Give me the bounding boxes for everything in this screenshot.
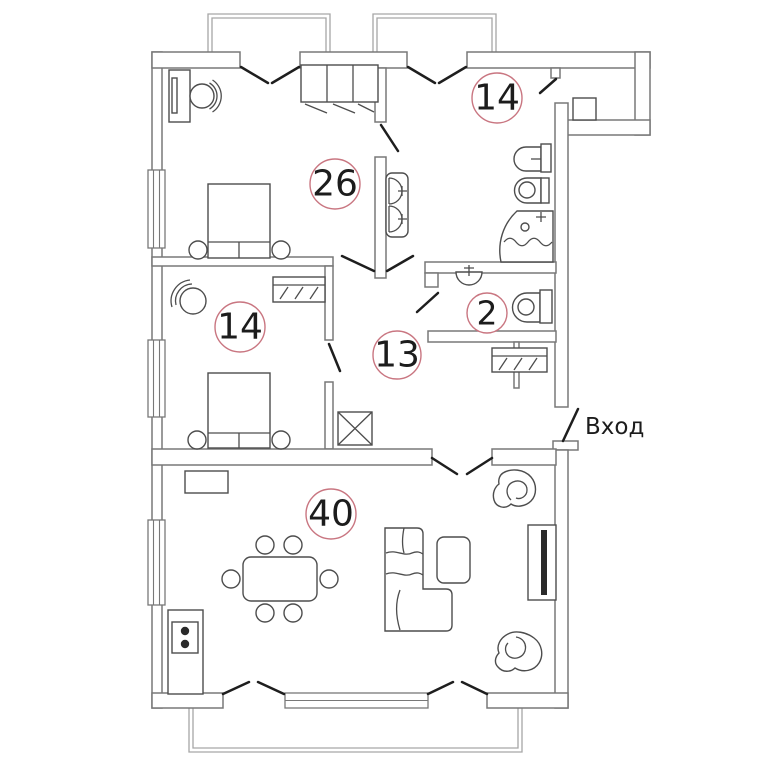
- wardrobe-icon-bedroom-2: [273, 277, 325, 302]
- room-area-badge-bathroom: 14: [472, 73, 522, 123]
- corner-bath-icon: [500, 211, 553, 262]
- room-area-badge-hallway: 13: [373, 331, 421, 379]
- armchair-icon-living-bottom: [495, 632, 541, 671]
- room-area-label: 14: [217, 307, 263, 348]
- room-area-label: 26: [312, 164, 358, 205]
- armchair-icon-living-top: [493, 470, 535, 507]
- desk-chair-icon: [190, 80, 221, 112]
- armchair-icon-bedroom-2: [171, 280, 206, 314]
- cooktop-icon: [172, 622, 198, 653]
- room-area-badge-bedroom-1: 26: [310, 159, 360, 209]
- dining-table-icon: [222, 536, 338, 622]
- entrance-label: Вход: [585, 414, 644, 440]
- room-area-label: 2: [477, 294, 498, 333]
- balcony-railing-bottom: [189, 708, 522, 752]
- room-area-badge-living-room: 40: [306, 489, 356, 539]
- tv-stand-icon: [528, 525, 556, 600]
- window-left-2: [148, 340, 165, 417]
- wardrobe-icon-bedroom-1: [301, 65, 378, 113]
- toilet-icon-bathroom: [514, 144, 551, 172]
- balcony-railing-top-left: [208, 14, 330, 52]
- ventilation-shaft-icon: [338, 412, 372, 445]
- room-area-label: 40: [308, 494, 354, 535]
- floor-plan: 26 14 14 2 13 40 Вход: [0, 0, 768, 768]
- water-heater-icon: [573, 98, 596, 120]
- room-area-label: 13: [374, 335, 420, 376]
- balcony-railing-top-right: [373, 14, 496, 52]
- window-bottom: [285, 693, 428, 708]
- room-area-badge-wc: 2: [467, 293, 507, 333]
- floor-plan-drawing: 26 14 14 2 13 40 Вход: [0, 0, 768, 768]
- bed-icon-bedroom-2: [188, 373, 290, 449]
- bed-icon-bedroom-1: [189, 184, 290, 259]
- sideboard-icon: [185, 471, 228, 493]
- window-left-3: [148, 520, 165, 605]
- bidet-icon: [515, 178, 550, 203]
- wardrobe-icon-hallway: [492, 348, 547, 372]
- coffee-table-icon: [437, 537, 470, 583]
- room-area-label: 14: [474, 78, 520, 119]
- double-sink-vanity-icon: [386, 173, 408, 237]
- room-area-badge-bedroom-2: 14: [215, 302, 265, 352]
- desk-icon: [169, 70, 190, 122]
- toilet-icon-wc: [513, 290, 553, 323]
- window-left-1: [148, 170, 165, 248]
